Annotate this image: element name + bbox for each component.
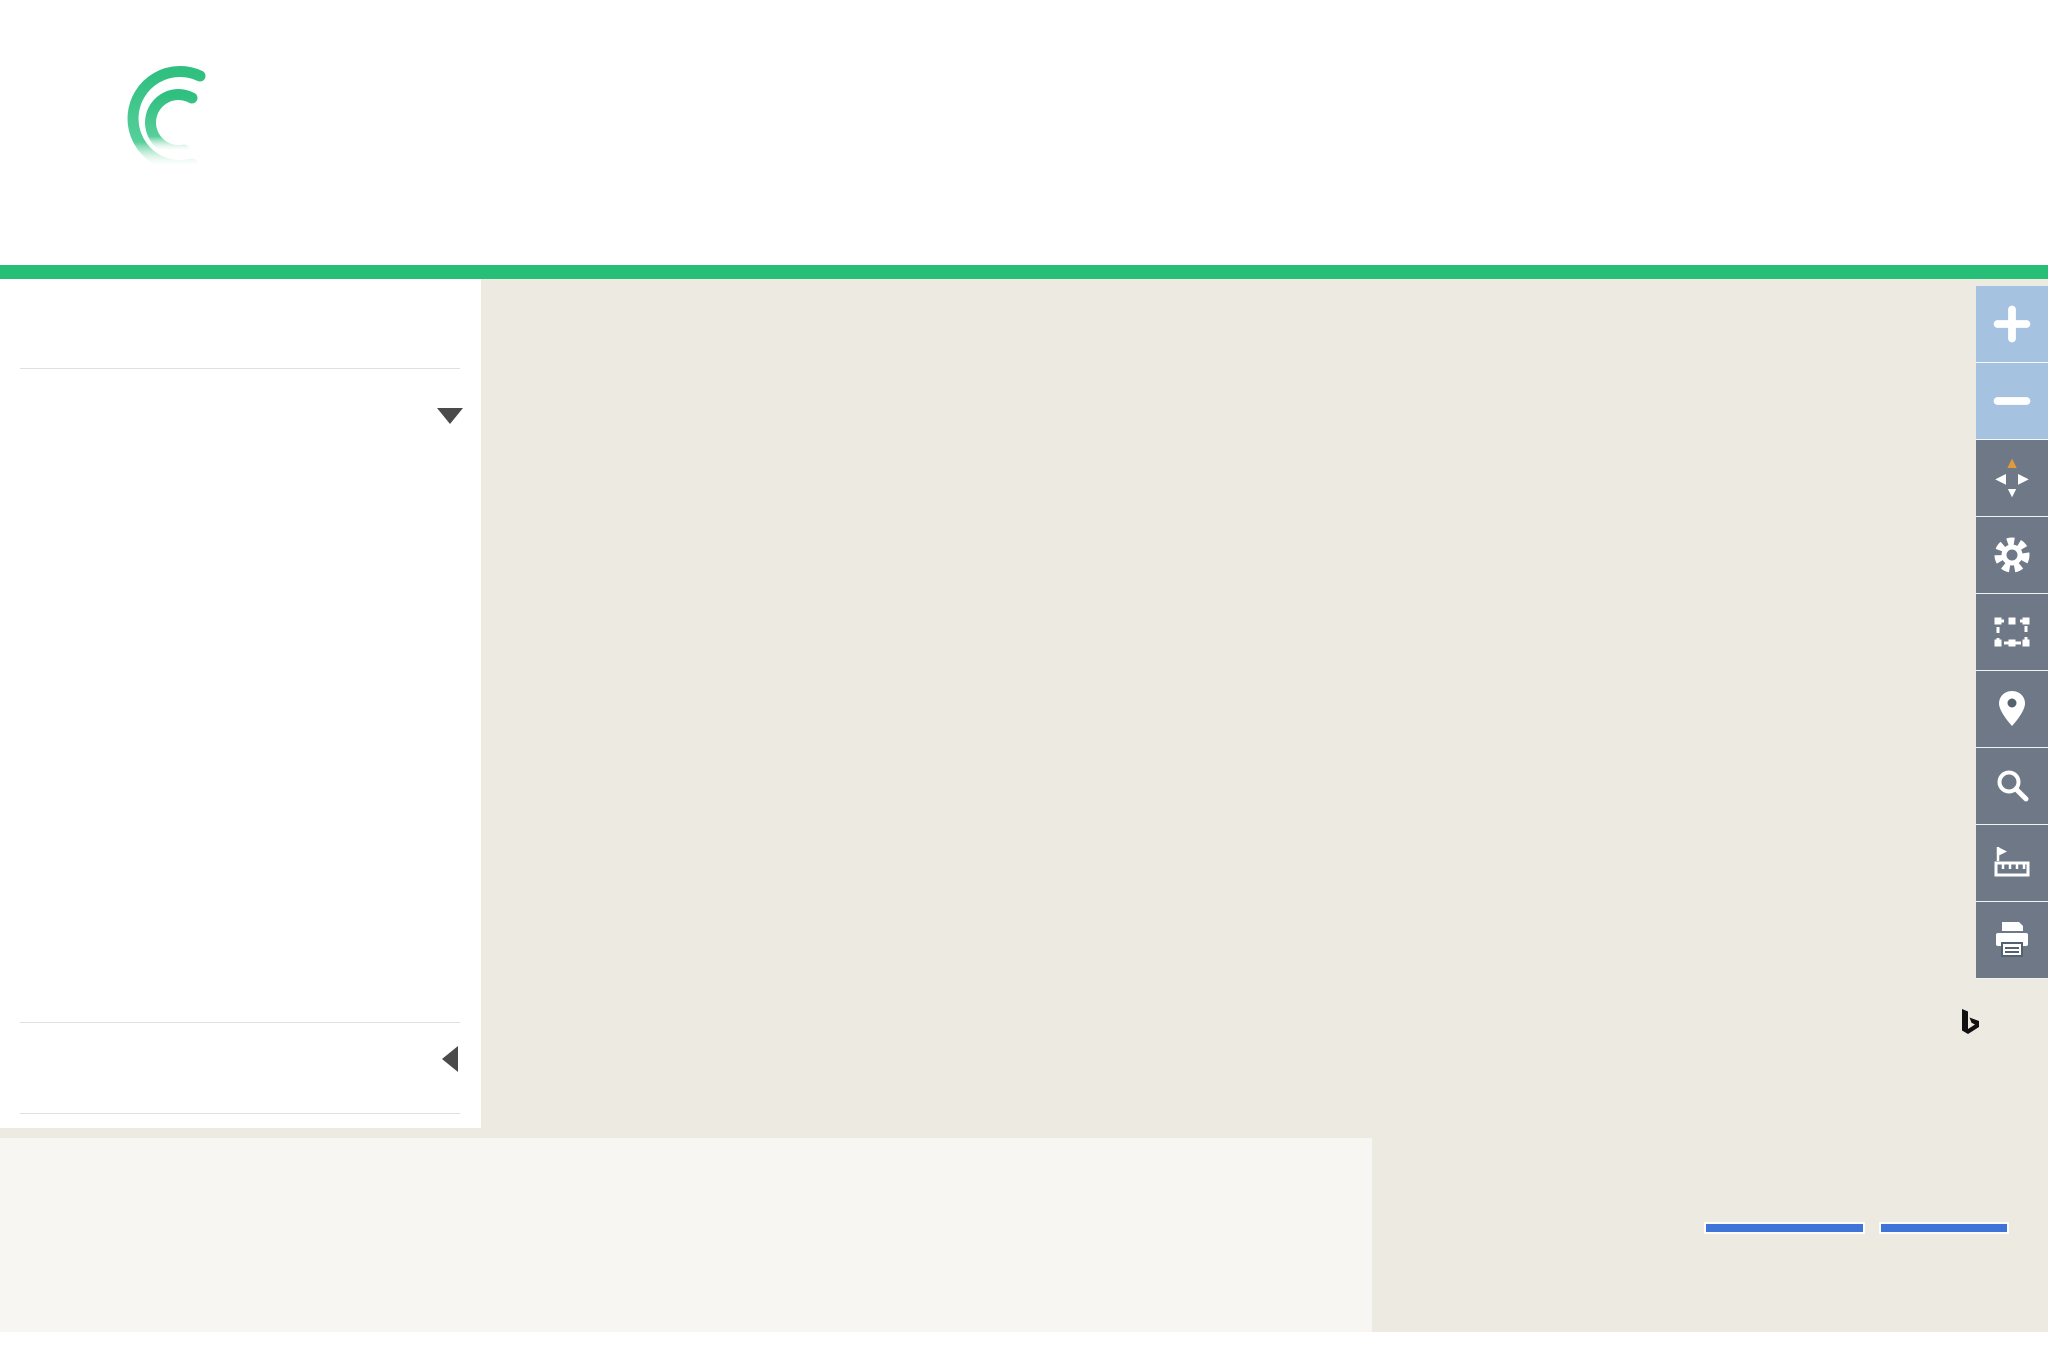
printer-icon	[1991, 919, 2033, 961]
search-icon	[1992, 766, 2032, 806]
compass-west-arrow-icon: ◀	[1995, 471, 2006, 485]
logo-arcs-icon	[112, 52, 232, 202]
selection-area-icon	[1991, 612, 2033, 652]
location-pin-icon	[1994, 688, 2030, 730]
settings-button[interactable]	[1976, 517, 2048, 594]
compass-east-arrow-icon: ▶	[2018, 471, 2029, 485]
plus-icon	[1992, 304, 2032, 344]
gear-icon	[1990, 533, 2034, 577]
print-button[interactable]	[1976, 902, 2048, 979]
locallook-logo[interactable]	[112, 52, 532, 212]
chevron-down-icon[interactable]	[437, 408, 463, 424]
layers-sidebar	[0, 279, 481, 1128]
search-button[interactable]	[1976, 748, 2048, 825]
page-bottom-margin	[0, 1332, 2048, 1365]
zoom-in-button[interactable]	[1976, 286, 2048, 363]
bing-icon	[1958, 1008, 1982, 1040]
locallook-map-page: ▲ ◀ ▶ ▼	[0, 0, 2048, 1365]
bing-logo[interactable]	[1958, 1008, 1986, 1040]
divider	[20, 1022, 460, 1023]
legend-background	[0, 1138, 1372, 1332]
compass-north-arrow-icon: ▲	[2004, 457, 2020, 471]
ruler-icon	[1990, 843, 2034, 883]
divider	[20, 368, 460, 369]
measure-button[interactable]	[1976, 825, 2048, 902]
compass-control[interactable]: ▲ ◀ ▶ ▼	[1976, 440, 2048, 517]
compass-south-arrow-icon: ▼	[2005, 485, 2019, 499]
divider	[20, 1113, 460, 1114]
minus-icon	[1992, 381, 2032, 421]
chevron-left-icon[interactable]	[442, 1046, 458, 1072]
area-select-button[interactable]	[1976, 594, 2048, 671]
location-button[interactable]	[1976, 671, 2048, 748]
header	[0, 0, 2048, 265]
map-toolbar: ▲ ◀ ▶ ▼	[1976, 286, 2048, 979]
zoom-out-button[interactable]	[1976, 363, 2048, 440]
header-divider-bar	[0, 265, 2048, 279]
